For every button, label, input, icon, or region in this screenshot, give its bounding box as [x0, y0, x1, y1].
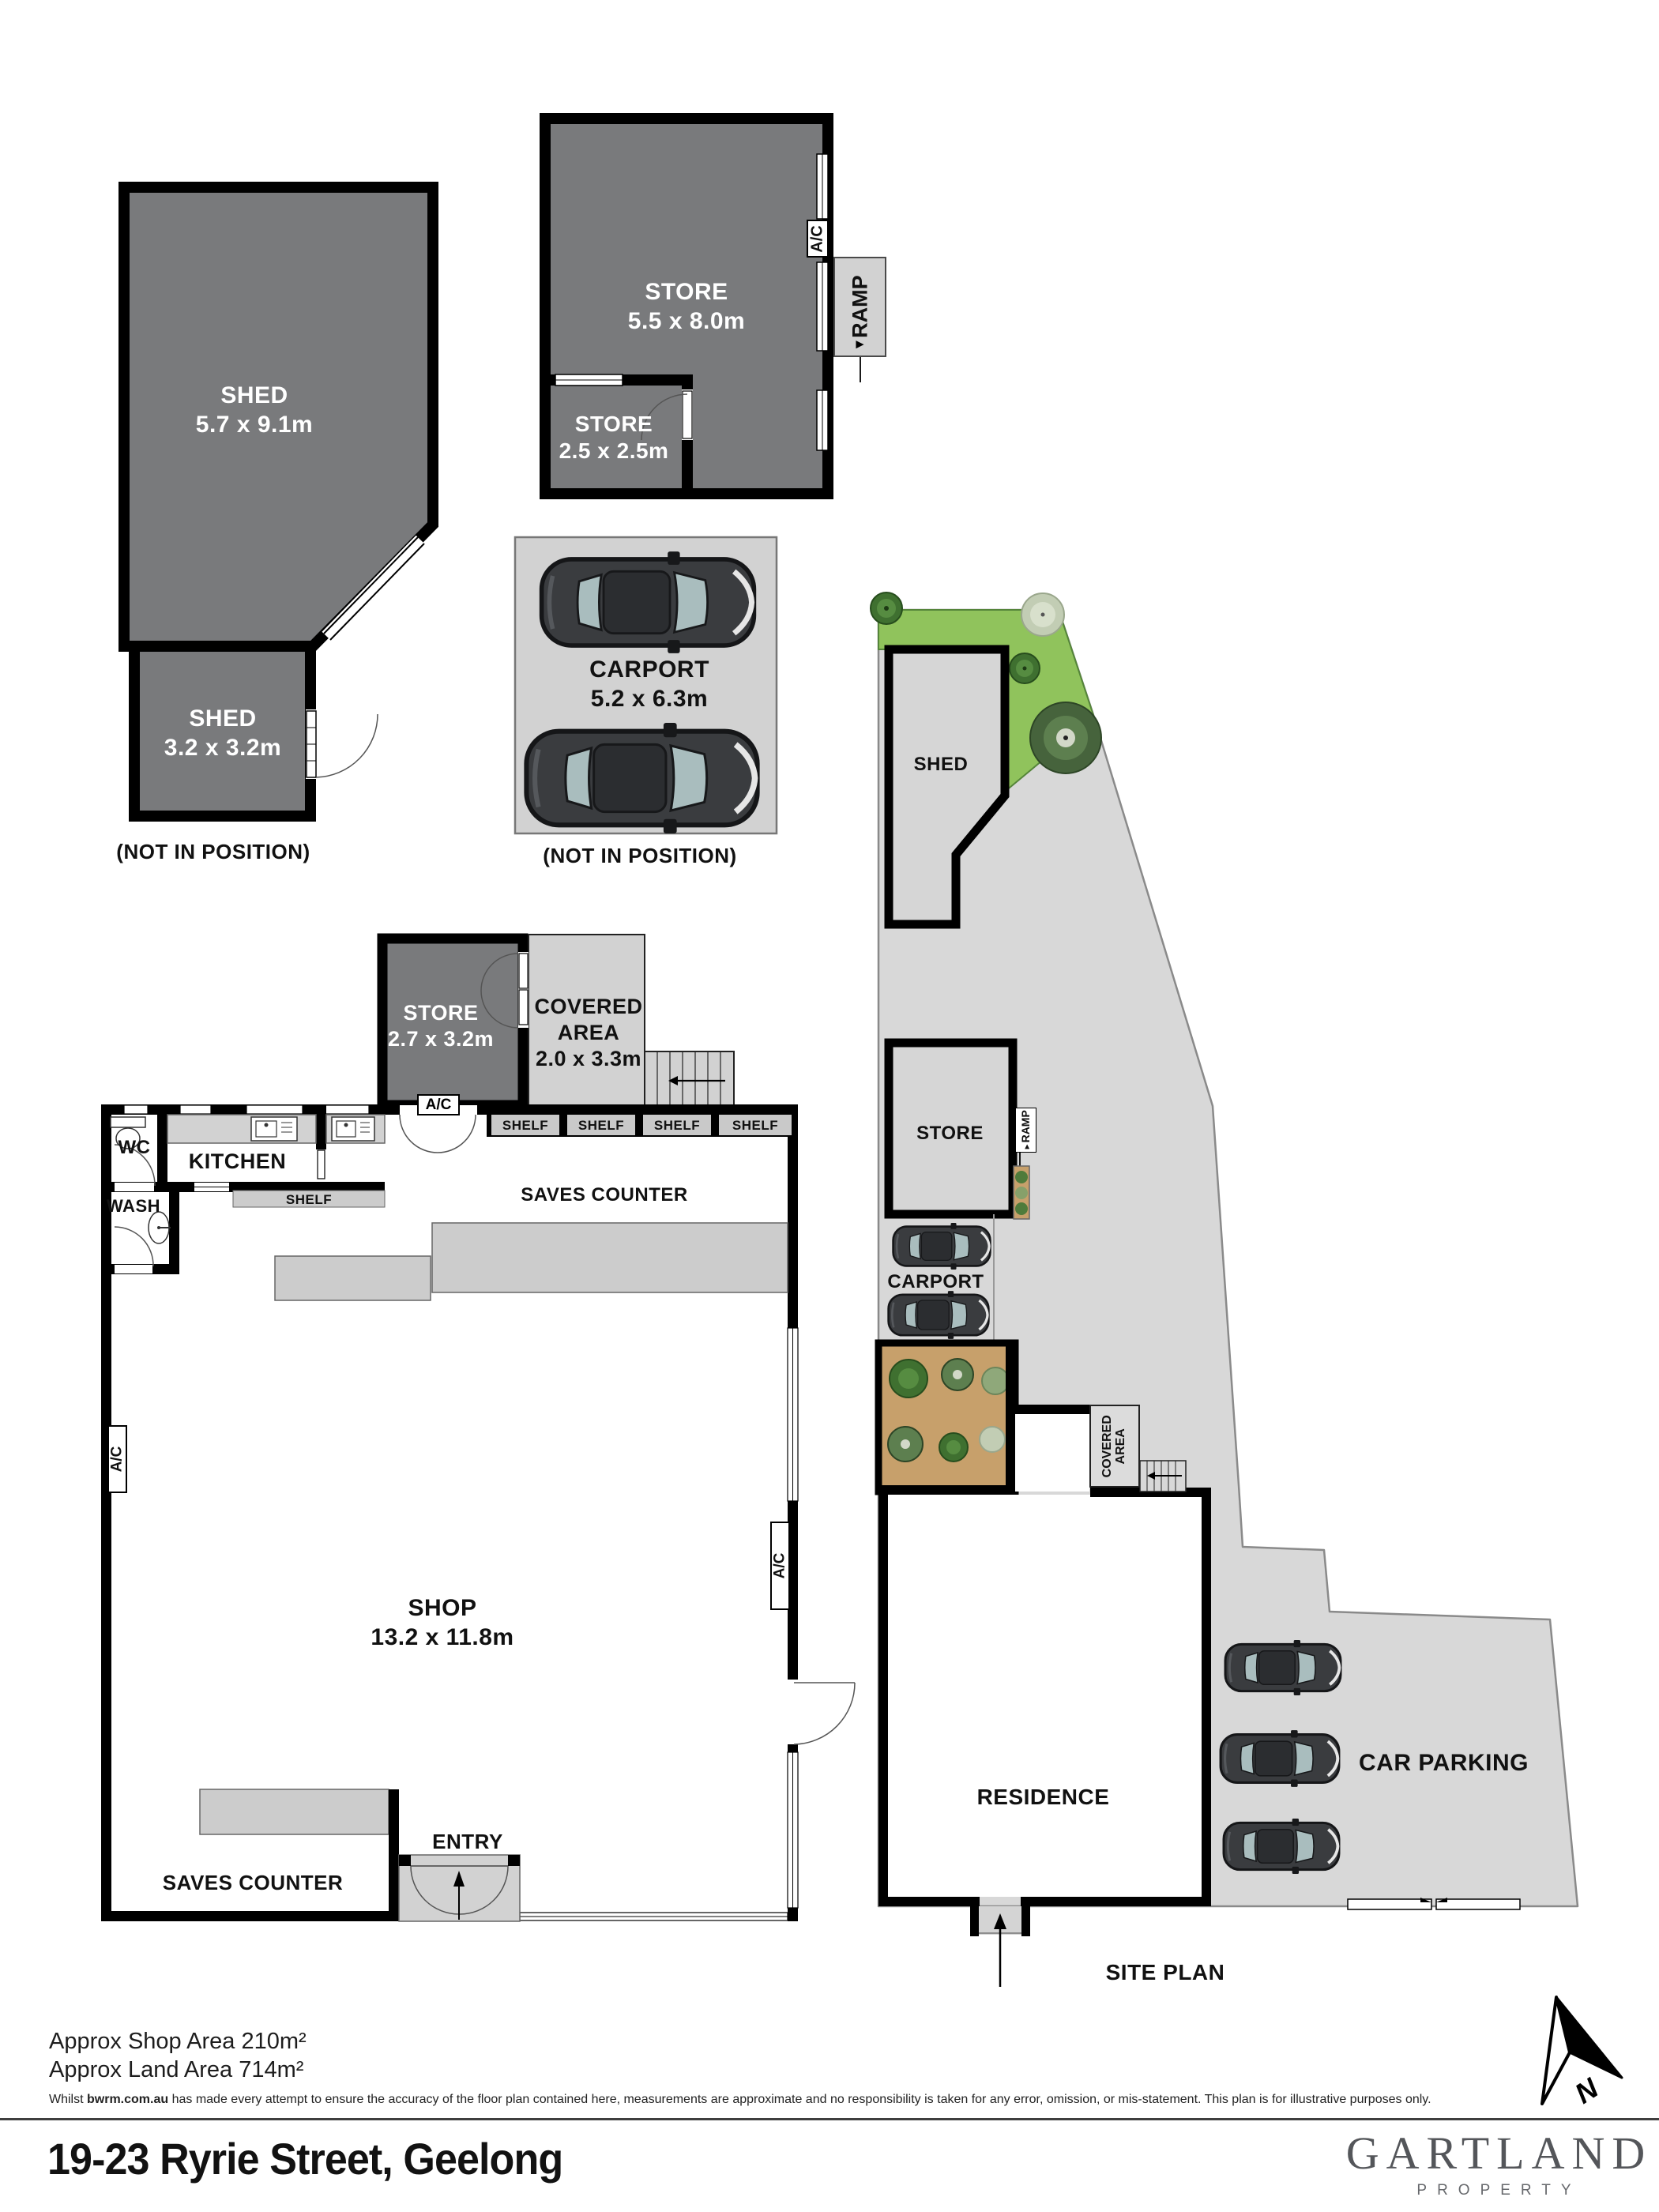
disclaimer: Whilst bwrm.com.au has made every attemp… — [49, 2093, 1431, 2107]
saves-counter-top-label: SAVES COUNTER — [490, 1183, 719, 1206]
ac-label: A/C — [110, 1446, 126, 1473]
shelf-label-2: SHELF — [567, 1118, 635, 1134]
sink-icon — [332, 1117, 374, 1141]
counter — [432, 1223, 788, 1292]
entry-vestibule — [399, 1855, 520, 1921]
ac-unit-store-fp: A/C — [417, 1094, 460, 1115]
counter — [275, 1256, 431, 1300]
car-icon — [1224, 1819, 1339, 1874]
page-title: 19-23 Ryrie Street, Geelong — [47, 2133, 562, 2184]
carport-np-name: CARPORT — [562, 656, 736, 685]
site-ramp-label: ►RAMP — [1015, 1108, 1036, 1153]
shed-large-label: SHED 5.7 x 9.1m — [167, 382, 341, 439]
entry-label: ENTRY — [404, 1830, 531, 1855]
kitchen-shelf-label: SHELF — [233, 1192, 385, 1209]
site-carport-label: CARPORT — [886, 1270, 985, 1293]
ac-label: A/C — [426, 1097, 452, 1114]
tree-icon — [1030, 702, 1101, 773]
saves-counter-bottom-label: SAVES COUNTER — [130, 1871, 375, 1896]
tree-icon — [871, 592, 902, 624]
site-car-parking-label: CAR PARKING — [1355, 1749, 1533, 1778]
shed-small-label: SHED 3.2 x 3.2m — [136, 705, 310, 762]
carport-np-dims: 5.2 x 6.3m — [562, 685, 736, 714]
ac-unit-top-store: A/C — [807, 220, 829, 258]
site-store-label: STORE — [901, 1122, 999, 1145]
store-small-label: STORE 2.5 x 2.5m — [527, 411, 701, 465]
store-fp-name: STORE — [366, 1000, 516, 1026]
shop-floorplan — [101, 935, 855, 1921]
store-large-dims: 5.5 x 8.0m — [600, 307, 773, 337]
site-garden-bed — [878, 1343, 1015, 1492]
approx-land-area: Approx Land Area 714m² — [49, 2057, 303, 2083]
ramp-arrow-icon: ► — [853, 337, 867, 352]
ramp-label: RAMP — [1019, 1110, 1032, 1142]
shed-large-dims: 5.7 x 9.1m — [167, 411, 341, 440]
covered-fp-line1: COVERED — [513, 994, 664, 1020]
site-entry-porch — [970, 1900, 1030, 1987]
shelf-label-3: SHELF — [643, 1118, 711, 1134]
not-in-position-middle: (NOT IN POSITION) — [517, 844, 762, 869]
north-arrow-icon: N — [1542, 1997, 1622, 2110]
kitchen-bench — [167, 1115, 385, 1143]
counter — [200, 1789, 389, 1834]
store-small-name: STORE — [527, 411, 701, 438]
approx-shop-area: Approx Shop Area 210m² — [49, 2029, 307, 2055]
shelf-label-1: SHELF — [491, 1118, 559, 1134]
car-icon — [1221, 1730, 1339, 1787]
car-icon — [893, 1223, 991, 1270]
ac-unit-left-wall: A/C — [107, 1425, 127, 1493]
car-icon — [1225, 1640, 1341, 1695]
floorplan-page: N SHED 5.7 x 9.1m SHED 3.2 x 3.2m (NOT I… — [0, 0, 1659, 2212]
shelf-label-4: SHELF — [719, 1118, 792, 1134]
site-shed-label: SHED — [897, 753, 984, 776]
footer-divider — [0, 2118, 1659, 2120]
ac-label: A/C — [810, 225, 826, 252]
covered-fp-line2: AREA — [513, 1020, 664, 1046]
kitchen-label: KITCHEN — [172, 1149, 303, 1175]
car-icon — [889, 1291, 989, 1339]
shop-label: SHOP 13.2 x 11.8m — [359, 1594, 525, 1652]
wc-label: WC — [111, 1136, 158, 1159]
site-residence-label: RESIDENCE — [962, 1784, 1124, 1811]
ac-label: A/C — [773, 1553, 788, 1579]
ramp-label: RAMP — [848, 276, 871, 339]
covered-line1: COVERED — [1101, 1415, 1115, 1477]
shed-large-name: SHED — [167, 382, 341, 411]
disclaimer-brand: bwrm.com.au — [87, 2093, 168, 2106]
store-small-dims: 2.5 x 2.5m — [527, 438, 701, 465]
store-large-name: STORE — [600, 278, 773, 307]
ac-unit-right-wall: A/C — [770, 1522, 790, 1610]
disclaimer-lead: Whilst — [49, 2093, 87, 2106]
shop-name: SHOP — [359, 1594, 525, 1623]
tree-icon — [1021, 593, 1064, 636]
ramp-top: RAMP ► — [833, 257, 886, 357]
site-planter — [1014, 1166, 1029, 1219]
shed-small-name: SHED — [136, 705, 310, 734]
wash-label: WASH — [103, 1196, 164, 1217]
ramp-arrow-icon: ► — [1023, 1142, 1032, 1150]
covered-fp-label: COVERED AREA 2.0 x 3.3m — [513, 994, 664, 1072]
compass-n: N — [1569, 2071, 1604, 2110]
sink-icon — [251, 1117, 297, 1141]
shed-small-dims: 3.2 x 3.2m — [136, 734, 310, 763]
covered-fp-dims: 2.0 x 3.3m — [513, 1046, 664, 1072]
car-icon — [542, 551, 754, 653]
not-in-position-left: (NOT IN POSITION) — [95, 840, 332, 865]
site-stairs — [1140, 1461, 1186, 1492]
brand-logo: GARTLAND — [1343, 2127, 1655, 2180]
store-fp-dims: 2.7 x 3.2m — [366, 1026, 516, 1052]
covered-line2: AREA — [1115, 1415, 1128, 1477]
store-fp-label: STORE 2.7 x 3.2m — [366, 1000, 516, 1052]
tree-icon — [1010, 653, 1040, 683]
car-icon — [526, 723, 757, 833]
brand-tagline: PROPERTY — [1343, 2182, 1655, 2199]
carport-np-label: CARPORT 5.2 x 6.3m — [562, 656, 736, 713]
shop-dims: 13.2 x 11.8m — [359, 1623, 525, 1653]
store-large-label: STORE 5.5 x 8.0m — [600, 278, 773, 336]
site-plan-caption: SITE PLAN — [1082, 1959, 1248, 1986]
site-covered-area-label: COVERED AREA — [1089, 1405, 1140, 1488]
disclaimer-rest: has made every attempt to ensure the acc… — [168, 2093, 1431, 2106]
